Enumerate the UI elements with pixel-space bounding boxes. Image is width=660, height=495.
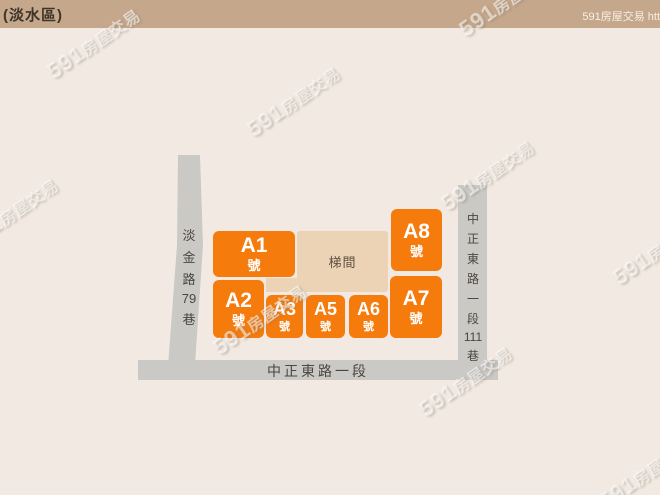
building-a3[interactable]: A3 號	[266, 295, 303, 338]
unit-suffix: 號	[409, 312, 422, 326]
building-a8[interactable]: A8 號	[391, 209, 442, 271]
watermark: 591房屋交易	[436, 133, 539, 216]
road-left-label: 淡 金 路 79 巷	[176, 225, 202, 328]
building-a1[interactable]: A1 號	[213, 231, 295, 277]
site-map-page: (淡水區) 591房屋交易 htt 淡 金 路 79 巷 中 正 東 路 一 段…	[0, 0, 660, 495]
stairwell-block: 梯間	[297, 231, 388, 292]
building-label: A1	[241, 235, 268, 256]
building-a7[interactable]: A7 號	[390, 276, 442, 338]
road-bottom-label: 中正東路一段	[138, 361, 498, 380]
building-a2[interactable]: A2 號	[213, 280, 264, 338]
watermark: 591房屋交易	[608, 207, 660, 290]
watermark: 591房屋交易	[0, 171, 63, 254]
stairwell-extension	[266, 278, 297, 292]
district-label: (淡水區)	[3, 4, 63, 25]
unit-suffix: 號	[247, 259, 260, 273]
building-label: A7	[403, 288, 430, 309]
site-title: 591房屋交易 htt	[582, 8, 660, 24]
road-right-label: 中 正 東 路 一 段 111 巷	[459, 210, 487, 364]
unit-suffix: 號	[320, 321, 331, 333]
building-label: A6	[357, 300, 380, 318]
watermark: 591房屋交易	[242, 59, 345, 142]
building-label: A8	[403, 221, 430, 242]
building-a6[interactable]: A6 號	[349, 295, 388, 338]
building-label: A5	[314, 300, 337, 318]
building-label: A3	[273, 300, 296, 318]
unit-suffix: 號	[410, 245, 423, 259]
unit-suffix: 號	[232, 314, 245, 328]
building-a5[interactable]: A5 號	[306, 295, 345, 338]
unit-suffix: 號	[279, 321, 290, 333]
unit-suffix: 號	[363, 321, 374, 333]
watermark: 591房屋交易	[594, 431, 660, 495]
header-bar: (淡水區) 591房屋交易 htt	[0, 0, 660, 28]
building-label: A2	[225, 290, 252, 311]
